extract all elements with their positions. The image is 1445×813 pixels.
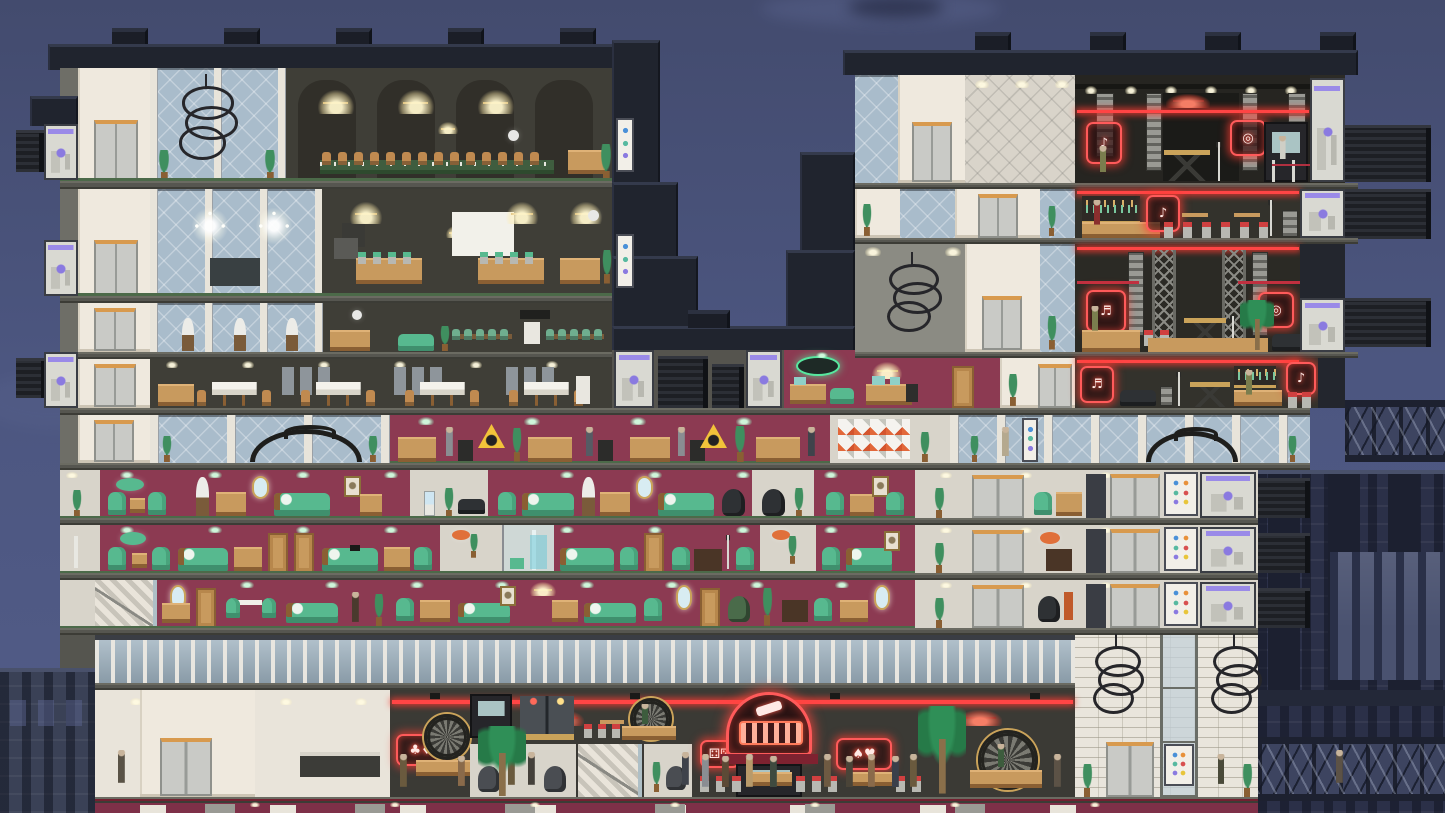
game-viewport[interactable]: ♪◎♪♬◎♬♪♣♦⚃⚄♠♥ bbox=[0, 0, 1445, 813]
bg-tower-left bbox=[0, 668, 95, 813]
bg-tower-left-window bbox=[10, 700, 26, 726]
layer-foreground bbox=[0, 0, 1445, 813]
skybridge-ground[interactable] bbox=[1258, 737, 1445, 801]
bg-tower-left-window bbox=[66, 700, 82, 726]
bg-tower-left-window bbox=[38, 700, 54, 726]
bridge-walker[interactable] bbox=[1334, 750, 1345, 790]
